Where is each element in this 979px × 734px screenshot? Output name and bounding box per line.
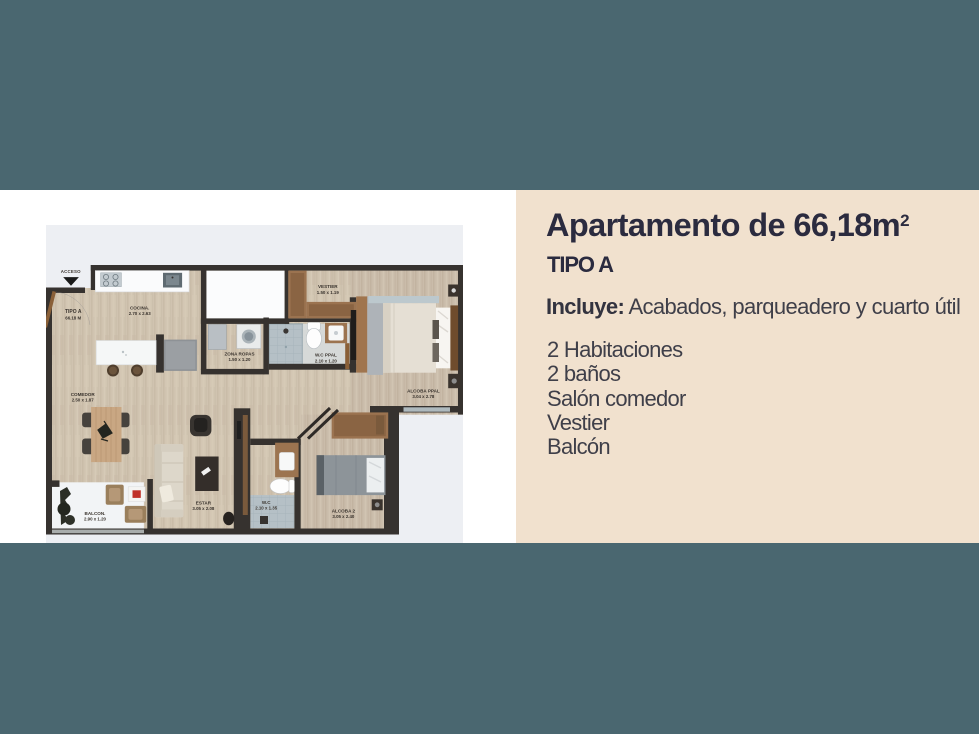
svg-text:1.50 x 1.19: 1.50 x 1.19 [317, 290, 340, 295]
svg-text:ESTAR: ESTAR [196, 500, 212, 505]
svg-text:VESTIER: VESTIER [318, 284, 338, 289]
svg-text:66.18 M: 66.18 M [65, 315, 81, 320]
svg-text:ALCOBA PPAL: ALCOBA PPAL [407, 388, 440, 393]
svg-text:ZONA ROPAS: ZONA ROPAS [224, 351, 254, 356]
svg-text:COMEDOR: COMEDOR [71, 392, 96, 397]
svg-text:COCINA.: COCINA. [130, 305, 149, 310]
svg-text:1.50 x 1.20: 1.50 x 1.20 [229, 357, 252, 362]
svg-text:2.10 x 1.20: 2.10 x 1.20 [315, 358, 338, 363]
svg-text:3.05 x 2.08: 3.05 x 2.08 [192, 506, 215, 511]
svg-text:TIPO A: TIPO A [65, 309, 82, 315]
svg-text:2.90 x 1.20: 2.90 x 1.20 [84, 517, 107, 522]
svg-text:3.05 x 2.40: 3.05 x 2.40 [332, 514, 355, 519]
svg-text:W.C PPAL: W.C PPAL [315, 353, 337, 358]
svg-text:ACCESO: ACCESO [61, 269, 81, 274]
svg-text:3.04 x 2.78: 3.04 x 2.78 [412, 394, 435, 399]
svg-text:2.10 x 1.35: 2.10 x 1.35 [255, 506, 278, 511]
svg-text:BALCON.: BALCON. [85, 511, 106, 516]
svg-text:2.50 x 1.87: 2.50 x 1.87 [72, 398, 95, 403]
svg-text:W.C: W.C [262, 500, 271, 505]
svg-text:2.70 x 2.63: 2.70 x 2.63 [129, 311, 152, 316]
svg-text:ALCOBA 2: ALCOBA 2 [332, 508, 356, 513]
